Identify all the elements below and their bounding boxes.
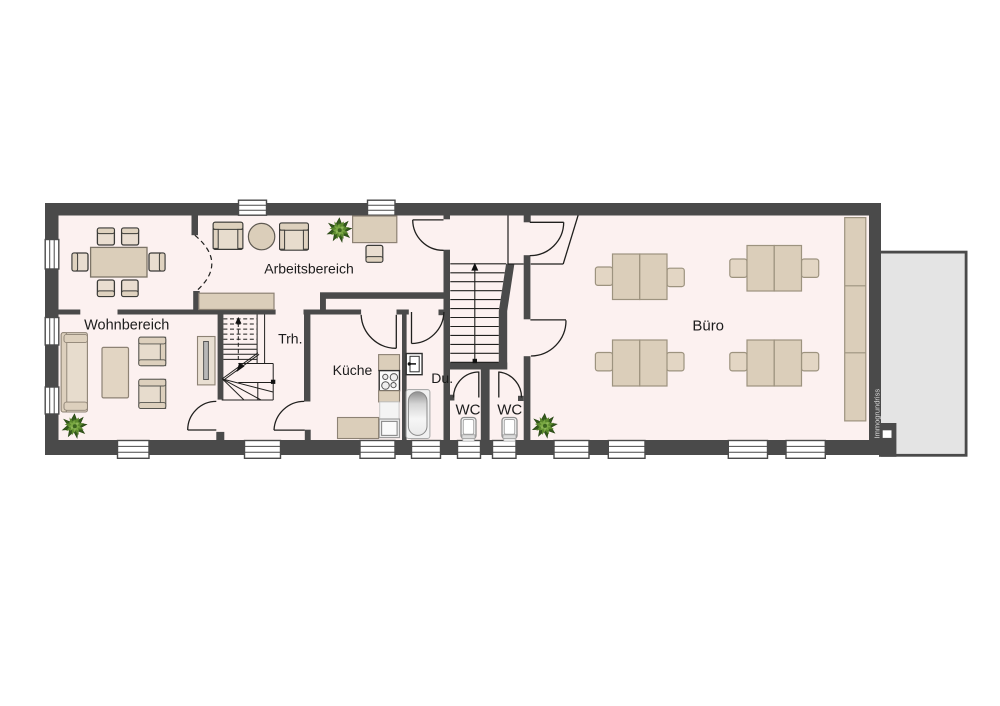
svg-text:Büro: Büro — [692, 318, 724, 335]
svg-text:Immogrundriss: Immogrundriss — [873, 389, 882, 439]
svg-text:Du.: Du. — [431, 370, 453, 386]
svg-text:Wohnbereich: Wohnbereich — [84, 318, 169, 334]
svg-text:WC: WC — [497, 402, 522, 419]
svg-text:WC: WC — [456, 402, 481, 419]
svg-text:Arbeitsbereich: Arbeitsbereich — [264, 261, 354, 277]
svg-text:Trh.: Trh. — [278, 331, 302, 347]
svg-text:Küche: Küche — [333, 362, 373, 378]
